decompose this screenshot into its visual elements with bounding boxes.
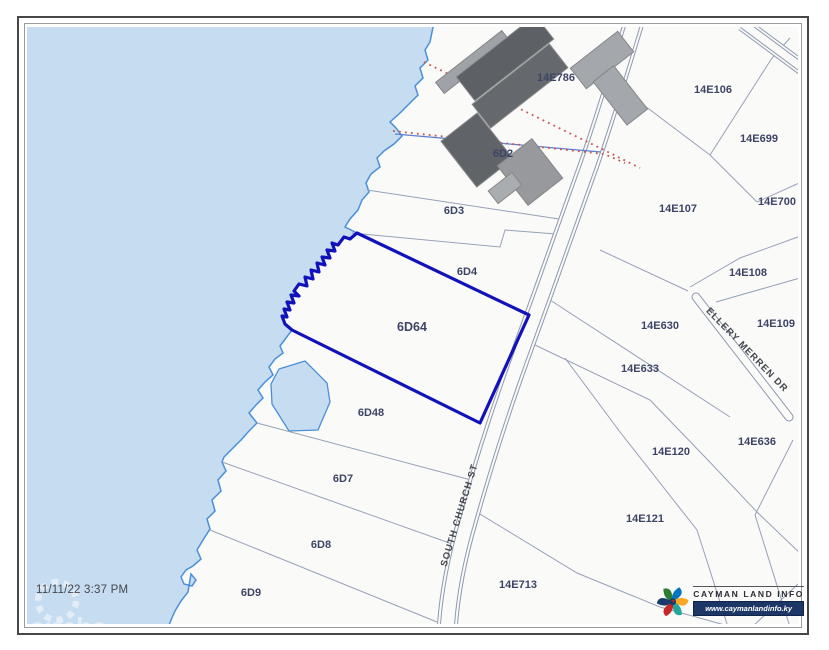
brand-name: CAYMAN LAND INFO xyxy=(693,586,804,599)
turtle-logo-icon xyxy=(656,577,689,625)
map-frame-inner-border xyxy=(24,23,802,628)
cayman-land-info-logo: CAYMAN LAND INFO www.caymanlandinfo.ky xyxy=(656,576,804,626)
map-timestamp: 11/11/22 3:37 PM xyxy=(36,584,128,596)
brand-website-link[interactable]: www.caymanlandinfo.ky xyxy=(693,601,804,616)
map-viewer-page: cireba 14E786 6D2 6D3 6D4 6D64 6D48 6D7 … xyxy=(0,0,829,650)
